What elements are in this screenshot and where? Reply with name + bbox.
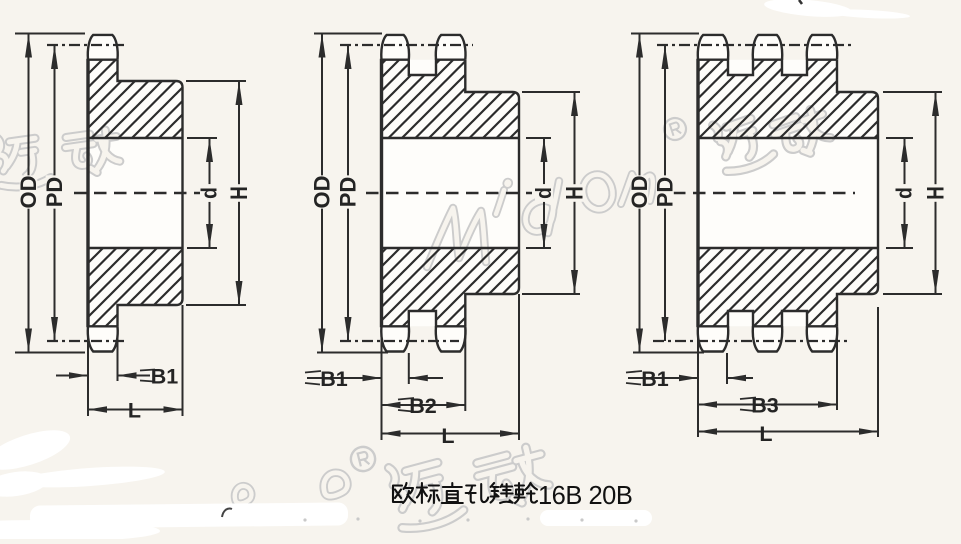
svg-text:PD: PD — [42, 177, 67, 208]
svg-text:16B 20B: 16B 20B — [538, 482, 632, 510]
svg-text:d: d — [532, 187, 557, 199]
svg-text:B3: B3 — [751, 394, 779, 418]
svg-text:B1: B1 — [641, 367, 669, 391]
svg-text:PD: PD — [336, 177, 361, 208]
svg-text:OD: OD — [310, 176, 335, 209]
svg-text:B1: B1 — [151, 365, 179, 389]
svg-text:d: d — [892, 187, 917, 199]
svg-text:H: H — [561, 186, 588, 200]
svg-text:L: L — [759, 422, 772, 446]
svg-text:OD: OD — [627, 176, 652, 209]
svg-text:PD: PD — [653, 177, 678, 208]
svg-text:L: L — [441, 424, 454, 448]
svg-text:L: L — [128, 399, 141, 423]
svg-text:H: H — [226, 186, 253, 200]
svg-text:B1: B1 — [320, 367, 348, 391]
svg-text:OD: OD — [16, 176, 41, 209]
svg-text:d: d — [197, 187, 222, 199]
svg-text:B2: B2 — [409, 394, 437, 418]
svg-text:H: H — [922, 186, 949, 200]
